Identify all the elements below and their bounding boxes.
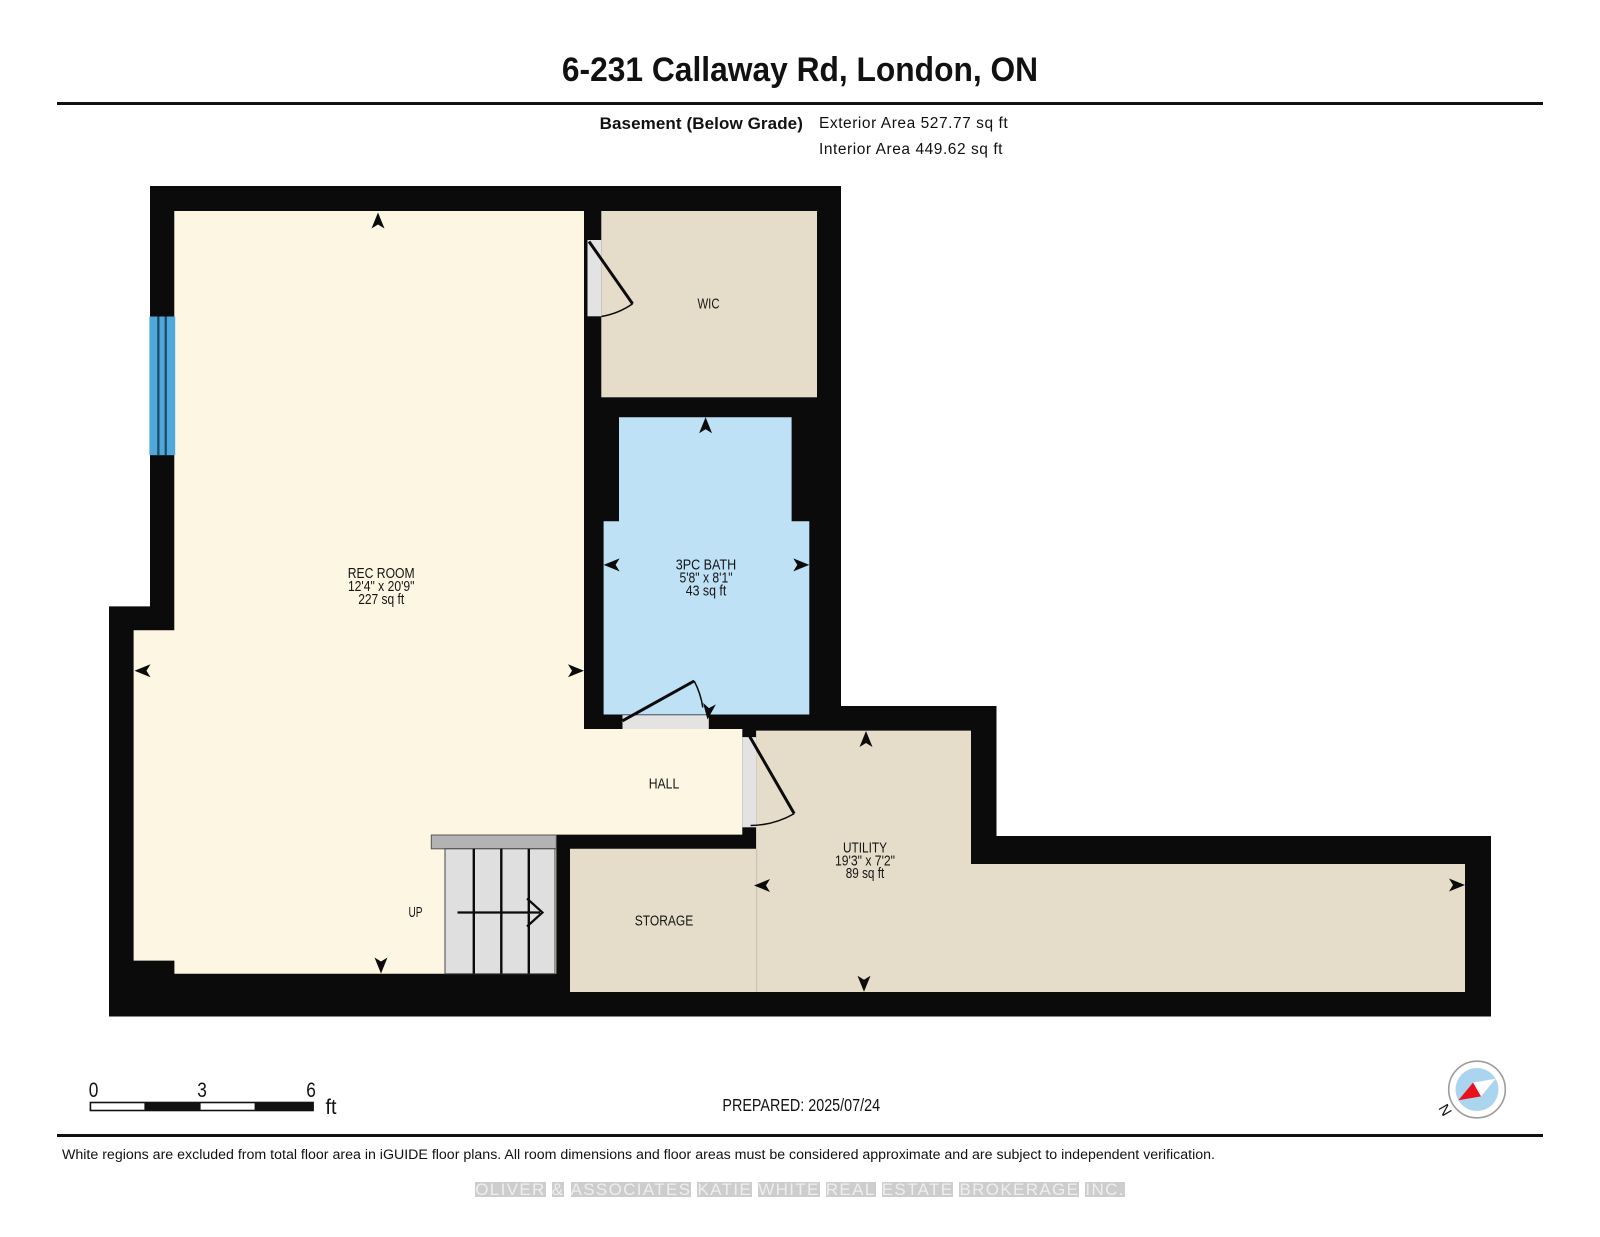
- svg-text:WIC: WIC: [698, 297, 720, 313]
- svg-text:STORAGE: STORAGE: [635, 914, 694, 930]
- svg-text:227 sq ft: 227 sq ft: [358, 592, 404, 608]
- svg-text:HALL: HALL: [649, 777, 680, 793]
- svg-text:43 sq ft: 43 sq ft: [686, 583, 727, 599]
- svg-text:0: 0: [89, 1078, 99, 1102]
- svg-text:UP: UP: [409, 905, 423, 921]
- svg-text:89 sq ft: 89 sq ft: [846, 866, 885, 882]
